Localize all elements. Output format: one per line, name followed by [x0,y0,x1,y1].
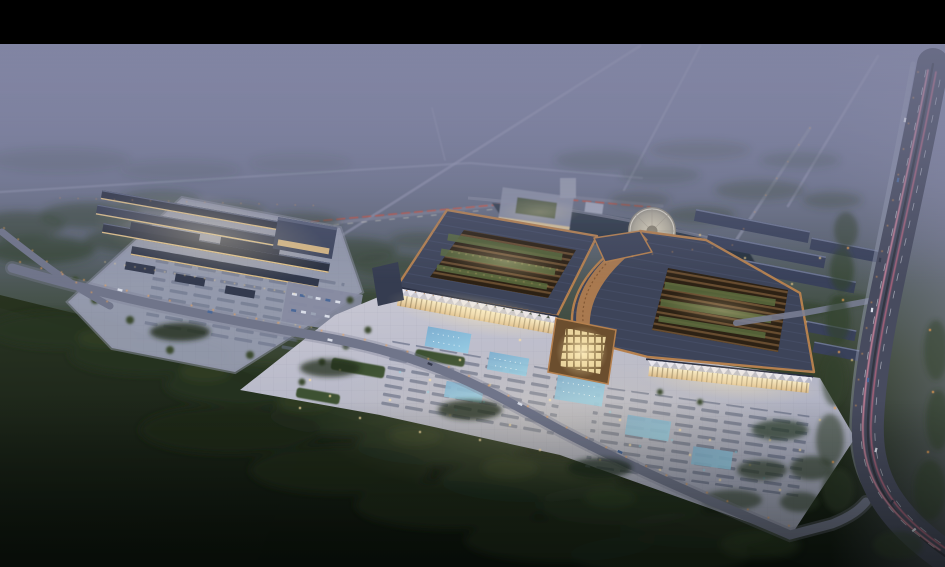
mist-overlay [0,44,945,284]
entrance-gate [548,318,616,384]
letterbox-top [0,0,945,44]
aerial-night-rendering [0,0,945,567]
bottom-vignette [0,400,945,567]
rendering-canvas [0,0,945,567]
